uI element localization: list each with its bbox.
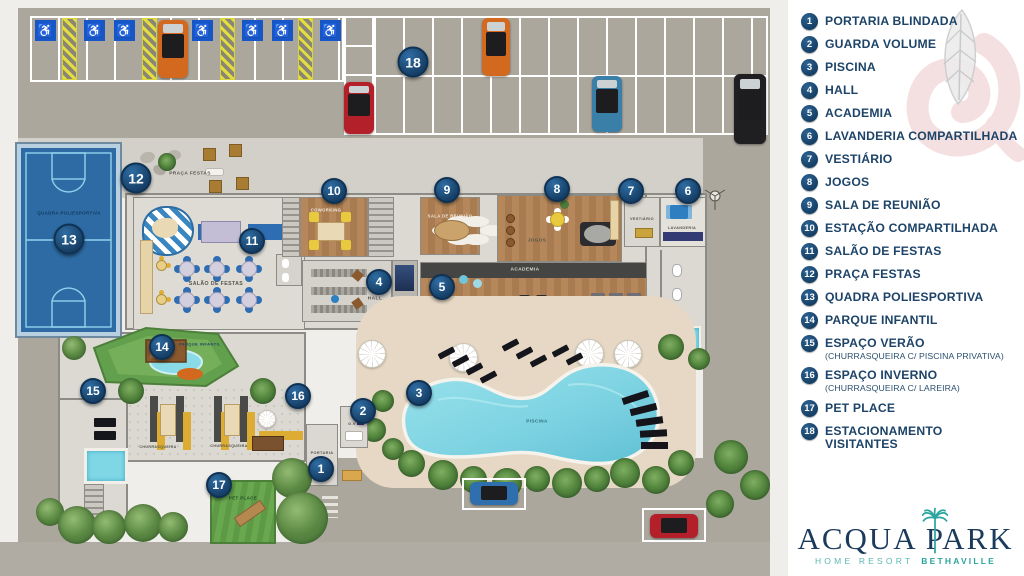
acqua-park-logo: ACQUA (801, 523, 1018, 566)
legend-item-6: 6LAVANDERIA COMPARTILHADA (801, 128, 1018, 145)
bar-stool (506, 226, 515, 235)
plan-marker-3: 3 (406, 380, 432, 406)
bush (158, 512, 188, 542)
legend-item-13: 13QUADRA POLIESPORTIVA (801, 289, 1018, 306)
visitor-parking-grid (374, 16, 768, 135)
bottom-road (0, 542, 770, 576)
palm-tree (398, 450, 425, 477)
accessible-stall-icon: ♿ (242, 20, 263, 41)
hall-table (331, 295, 339, 303)
billiard-felt (584, 225, 612, 243)
meeting-table (434, 220, 470, 241)
site-plan: ♿ ♿ ♿ ♿ ♿ ♿ ♿ (0, 0, 788, 576)
palm-tree (524, 466, 550, 492)
legend-item-5: 5ACADEMIA (801, 105, 1018, 122)
legend-number-badge: 6 (801, 128, 818, 145)
coworking-chair (309, 240, 319, 250)
pool-ledge (641, 442, 668, 449)
legend-label: PET PLACE (825, 400, 895, 416)
sala-reuniao-label: SALA DE REUNIÃO (428, 214, 473, 219)
bbq-table (160, 404, 176, 436)
parking-grid-midline (376, 75, 766, 77)
accessible-stall-icon: ♿ (272, 20, 293, 41)
legend-sublabel: (CHURRASQUEIRA C/ LAREIRA) (825, 384, 960, 394)
hatch-divider (142, 18, 157, 80)
car-red (650, 514, 698, 538)
hall-label: HALL (368, 297, 382, 302)
legend-item-14: 14PARQUE INFANTIL (801, 312, 1018, 329)
legend-label: LAVANDERIA COMPARTILHADA (825, 128, 1018, 144)
compass-icon (702, 186, 728, 212)
praca-label: PRAÇA FESTAS (169, 172, 211, 177)
palm-tree (688, 348, 710, 370)
pool-ledge (640, 429, 667, 437)
plan-marker-5: 5 (429, 274, 455, 300)
garden-tree (250, 378, 276, 404)
car-blue (470, 482, 518, 505)
legend-number-badge: 16 (801, 367, 818, 384)
piscina-label: PISCINA (526, 419, 547, 424)
stairs (368, 197, 394, 257)
legend-number-badge: 11 (801, 243, 818, 260)
plant (560, 200, 569, 209)
legend-number-badge: 13 (801, 289, 818, 306)
churrasqueira-label-b: CHURRASQUEIRA (210, 444, 247, 448)
inverno-umbrella-table (258, 410, 276, 428)
site-plan-screenshot: ♿ ♿ ♿ ♿ ♿ ♿ ♿ (0, 0, 1024, 576)
laundry-shelf (663, 232, 703, 241)
legend-item-18: 18ESTACIONAMENTO VISITANTES (801, 423, 991, 452)
plan-marker-1: 1 (308, 456, 334, 482)
wc-fixture (672, 288, 682, 301)
legend-label: PRAÇA FESTAS (825, 266, 921, 282)
palm-tree (428, 460, 458, 490)
car-black (734, 74, 766, 144)
gym-table (473, 279, 482, 288)
car-orange (482, 18, 510, 76)
plan-marker-6: 6 (675, 178, 701, 204)
plan-marker-18: 18 (398, 47, 429, 78)
legend-label: ESTACIONAMENTO VISITANTES (825, 423, 991, 452)
salao-long-table (201, 221, 241, 243)
bar-stool (506, 214, 515, 223)
legend-number-badge: 12 (801, 266, 818, 283)
coworking-label: COWORKING (311, 208, 342, 213)
verao-lounger (94, 431, 116, 440)
plan-marker-12: 12 (121, 163, 152, 194)
legend-item-7: 7VESTIÁRIO (801, 151, 1018, 168)
palm-tree (552, 468, 582, 498)
coworking-room (300, 197, 368, 257)
legend-label: GUARDA VOLUME (825, 36, 936, 52)
churrasqueira-label-a: CHURRASQUEIRA (139, 445, 176, 449)
palm-tree (658, 334, 684, 360)
gym-table (459, 275, 468, 284)
bar-stool (506, 238, 515, 247)
legend-number-badge: 2 (801, 36, 818, 53)
inverno-table (252, 436, 284, 451)
legend-number-badge: 5 (801, 105, 818, 122)
bbq-table (224, 404, 240, 436)
wc-fixture (282, 259, 289, 268)
vestiario-label: VESTIÁRIO (630, 217, 654, 221)
accessible-stall-icon: ♿ (84, 20, 105, 41)
legend-item-11: 11SALÃO DE FESTAS (801, 243, 1018, 260)
lavanderia-label: LAVANDERIA (668, 226, 696, 230)
bbq-counter (214, 396, 222, 442)
wc-fixture (672, 264, 682, 277)
stairs (282, 197, 300, 257)
legend-number-badge: 8 (801, 174, 818, 191)
legend-label: QUADRA POLIESPORTIVA (825, 289, 983, 305)
bbq-counter (150, 396, 158, 442)
plan-marker-16: 16 (285, 383, 311, 409)
lavanderia-room (660, 197, 706, 247)
coworking-chair (309, 212, 319, 222)
accessible-stall-icon: ♿ (35, 20, 56, 41)
coworking-chair (341, 240, 351, 250)
garden-tree (118, 378, 144, 404)
washing-machines (666, 205, 692, 219)
legend-item-8: 8JOGOS (801, 174, 1018, 191)
hatch-divider (298, 18, 313, 80)
legend-item-16: 16ESPAÇO INVERNO(CHURRASQUEIRA C/ LAREIR… (801, 367, 1018, 393)
legend-item-10: 10ESTAÇÃO COMPARTILHADA (801, 220, 1018, 237)
pet-place-label: PET PLACE (229, 496, 257, 501)
plan-marker-8: 8 (544, 176, 570, 202)
salao-round-table (179, 261, 195, 277)
bbq-counter (176, 396, 184, 442)
plan-marker-14: 14 (149, 334, 175, 360)
plan-marker-4: 4 (366, 269, 392, 295)
legend-item-15: 15ESPAÇO VERÃO(CHURRASQUEIRA C/ PISCINA … (801, 335, 1018, 361)
plan-marker-11: 11 (239, 228, 265, 254)
salao-side-table (156, 260, 167, 271)
salao-side-table (156, 294, 167, 305)
salao-bench (140, 240, 153, 314)
legend-number-badge: 10 (801, 220, 818, 237)
plan-marker-7: 7 (618, 178, 644, 204)
salao-round-table (241, 261, 257, 277)
plan-marker-15: 15 (80, 378, 106, 404)
legend-label: SALÃO DE FESTAS (825, 243, 942, 259)
legend-label: ESTAÇÃO COMPARTILHADA (825, 220, 998, 236)
salao-label: SALÃO DE FESTAS (189, 281, 243, 287)
portaria-label: PORTARIA (311, 451, 334, 455)
logo-word-acqua: ACQUA (797, 525, 917, 553)
legend-item-17: 17PET PLACE (801, 400, 1018, 417)
coworking-table (317, 222, 345, 241)
palm-tree (740, 470, 770, 500)
accessible-stall-icon: ♿ (320, 20, 341, 41)
bush (124, 504, 162, 542)
legend-label: HALL (825, 82, 858, 98)
bush (92, 510, 126, 544)
hatch-divider (220, 18, 235, 80)
vestiario-room (624, 197, 660, 247)
logo-tagline-bethaville: BETHAVILLE (921, 556, 996, 566)
bush (58, 506, 96, 544)
locker-bench (635, 228, 653, 238)
salao-bar-counter (152, 218, 178, 238)
legend-label: VESTIÁRIO (825, 151, 893, 167)
salao-round-table (241, 292, 257, 308)
palm-tree (584, 466, 610, 492)
palm-tree (642, 466, 670, 494)
games-counter (610, 200, 619, 240)
legend-sublabel: (CHURRASQUEIRA C/ PISCINA PRIVATIVA) (825, 352, 1004, 362)
palm-tree (714, 440, 748, 474)
jogos-label: JOGOS (528, 238, 546, 243)
legend-number-badge: 4 (801, 82, 818, 99)
legend-label: PORTARIA BLINDADA (825, 13, 958, 29)
salao-round-table (209, 261, 225, 277)
academia-label: ACADEMIA (510, 268, 539, 273)
legend-number-badge: 3 (801, 59, 818, 76)
car-blue (592, 76, 622, 132)
verao-lounger (94, 418, 116, 427)
praca-mat (229, 144, 242, 157)
elevator-glass (395, 265, 414, 291)
legend-number-badge: 7 (801, 151, 818, 168)
plan-marker-10: 10 (321, 178, 347, 204)
salao-round-table (179, 292, 195, 308)
legend-item-1: 1PORTARIA BLINDADA (801, 13, 1018, 30)
plan-marker-2: 2 (350, 398, 376, 424)
legend-item-9: 9SALA DE REUNIÃO (801, 197, 1018, 214)
legend-number-badge: 15 (801, 335, 818, 352)
legend-label: ACADEMIA (825, 105, 892, 121)
legend-panel: 1PORTARIA BLINDADA 2GUARDA VOLUME 3PISCI… (788, 0, 1024, 576)
plan-marker-13: 13 (54, 224, 85, 255)
sala-reuniao-room (420, 197, 480, 255)
plan-marker-17: 17 (206, 472, 232, 498)
bush (62, 336, 86, 360)
verao-private-pool (84, 448, 128, 484)
palm-tree (706, 490, 734, 518)
palm-tree (668, 450, 694, 476)
parque-label: PARQUE INFANTIL (179, 342, 221, 347)
entry-mat (342, 470, 362, 481)
wc-fixture (282, 273, 289, 282)
praca-mat (236, 177, 249, 190)
praca-mat (203, 148, 216, 161)
legend-number-badge: 9 (801, 197, 818, 214)
legend-label: PARQUE INFANTIL (825, 312, 937, 328)
gv-bench (345, 431, 363, 441)
praca-tree (158, 153, 176, 171)
legend-number-badge: 1 (801, 13, 818, 30)
accessible-stall-icon: ♿ (114, 20, 135, 41)
salao-wc (276, 254, 302, 286)
bbq-counter (240, 396, 248, 442)
praca-mat (209, 180, 222, 193)
legend-item-4: 4HALL (801, 82, 1018, 99)
jogos-room (497, 195, 622, 262)
bush (276, 492, 328, 544)
legend-item-3: 3PISCINA (801, 59, 1018, 76)
legend-number-badge: 17 (801, 400, 818, 417)
salao-round-table (209, 292, 225, 308)
legend-number-badge: 18 (801, 423, 818, 440)
plan-marker-9: 9 (434, 177, 460, 203)
legend-label: PISCINA (825, 59, 876, 75)
gv-label: G.V (348, 422, 356, 426)
legend-label: ESPAÇO INVERNO(CHURRASQUEIRA C/ LAREIRA) (825, 367, 960, 393)
legend-label: JOGOS (825, 174, 869, 190)
coworking-chair (341, 212, 351, 222)
legend-item-2: 2GUARDA VOLUME (801, 36, 1018, 53)
legend-label: SALA DE REUNIÃO (825, 197, 941, 213)
games-table (550, 212, 565, 227)
legend-number-badge: 14 (801, 312, 818, 329)
court-label: QUADRA POLIESPORTIVA (37, 211, 101, 216)
salao-de-festas-room (133, 197, 305, 330)
accessible-stall-icon: ♿ (192, 20, 213, 41)
palm-tree (610, 458, 640, 488)
hatch-divider (62, 18, 77, 80)
legend-label: ESPAÇO VERÃO(CHURRASQUEIRA C/ PISCINA PR… (825, 335, 1004, 361)
legend-item-12: 12PRAÇA FESTAS (801, 266, 1018, 283)
logo-tagline-home-resort: HOME RESORT (815, 556, 913, 566)
car-orange (158, 20, 188, 78)
hall-bench (311, 287, 367, 295)
car-red (344, 82, 374, 134)
